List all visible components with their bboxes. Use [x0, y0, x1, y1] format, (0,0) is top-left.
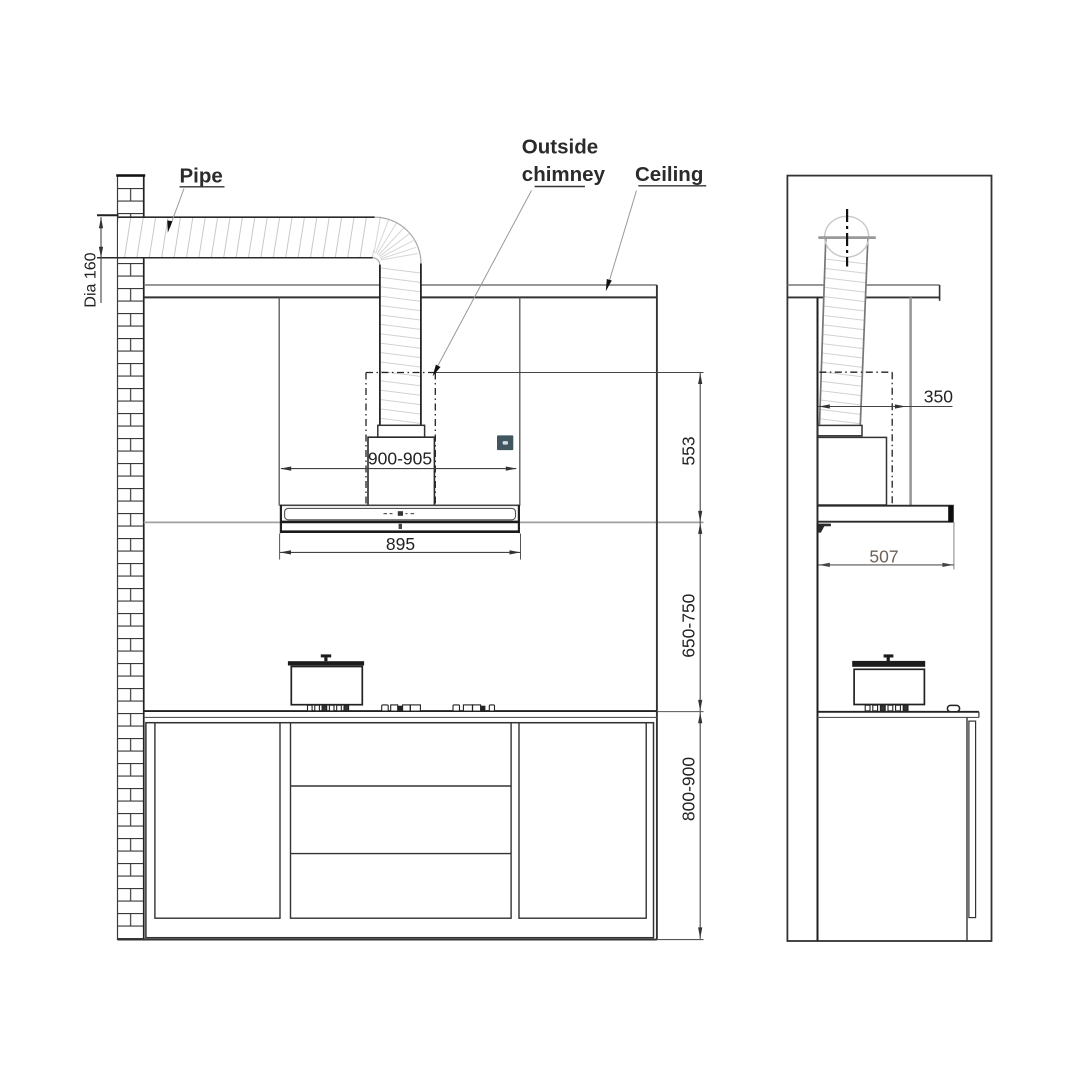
- svg-text:553: 553: [679, 436, 699, 465]
- svg-text:895: 895: [386, 534, 415, 554]
- svg-text:Ceiling: Ceiling: [635, 163, 703, 186]
- svg-text:507: 507: [869, 547, 898, 567]
- svg-text:chimney: chimney: [522, 163, 606, 186]
- svg-text:Outside: Outside: [522, 135, 598, 158]
- svg-text:Dia 160: Dia 160: [83, 252, 100, 307]
- svg-text:900-905: 900-905: [368, 449, 432, 469]
- svg-text:350: 350: [924, 386, 953, 406]
- svg-text:800-900: 800-900: [679, 757, 699, 821]
- svg-text:Pipe: Pipe: [180, 165, 223, 188]
- svg-text:650-750: 650-750: [679, 593, 699, 657]
